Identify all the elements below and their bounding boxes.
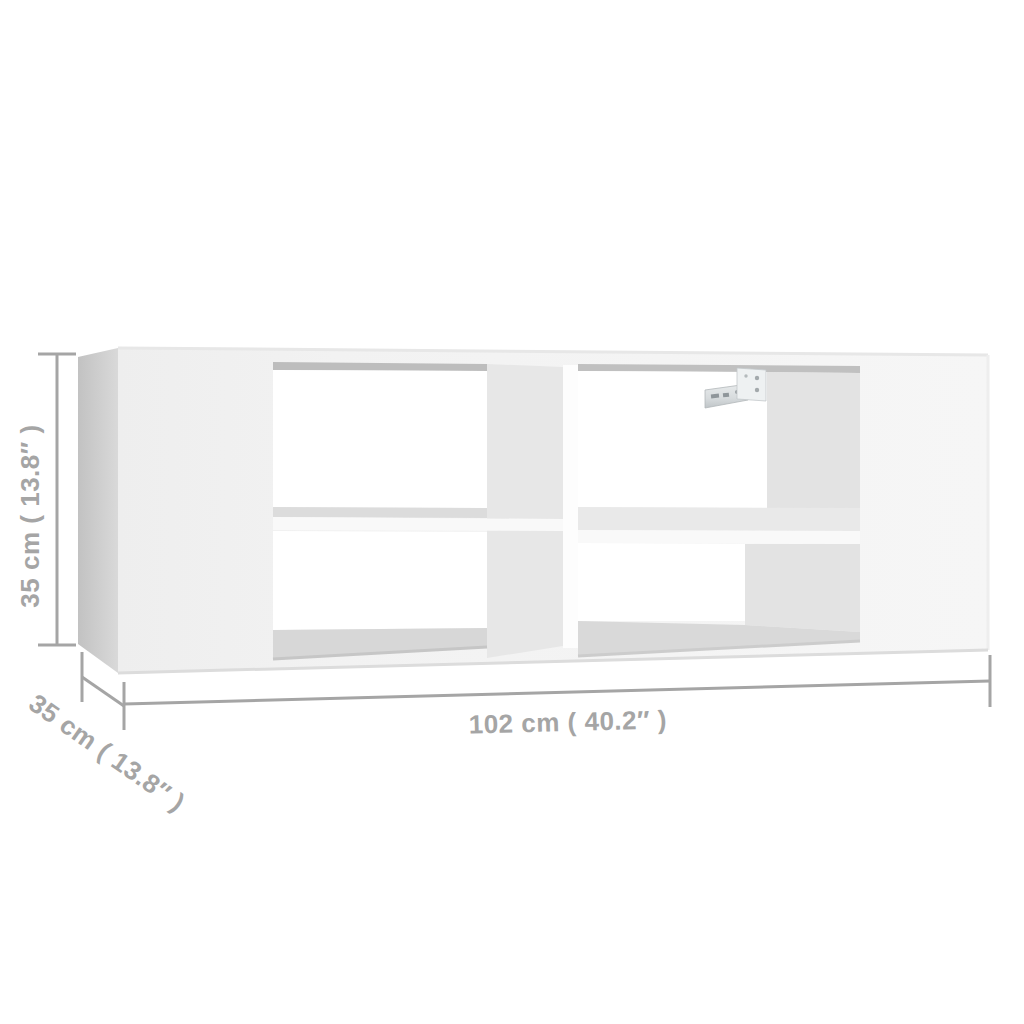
right-shelf-front-edge [578,530,860,544]
bracket-rail-slot [711,394,719,399]
product-dimension-image: 35 cm ( 13.8″ ) 35 cm ( 13.8″ ) 102 cm (… [0,0,1024,1024]
right-shelf-top-surface [578,507,860,531]
compartment-bottom-left-opening [273,531,487,630]
tv-shelf-illustration [78,348,988,673]
center-divider-front-edge [563,365,578,648]
cabinet-left-side-panel [78,348,118,673]
compartment-bottom-left [273,531,487,659]
left-shelf-top-shadow [273,507,487,518]
bracket-plate-hole [755,376,759,380]
compartment-bottom-right-sidewall-shadow [745,544,860,632]
compartment-top-right [578,364,860,508]
diagram-canvas: 35 cm ( 13.8″ ) 35 cm ( 13.8″ ) 102 cm (… [0,0,1024,1024]
compartment-top-left [273,362,487,518]
bracket-plate-hole [744,374,747,377]
compartment-top-left-opening [273,370,487,508]
compartment-bottom-right [578,543,860,656]
compartment-top-right-sidewall-shadow [767,372,860,508]
compartment-bottom-right-opening [578,543,745,621]
bracket-plate-hole [755,388,759,392]
center-divider-interior-face [487,364,563,658]
left-shelf-front-edge [273,517,563,531]
bracket-rail-slot [723,393,729,398]
height-dimension-label: 35 cm ( 13.8″ ) [15,424,45,607]
bracket-plate [737,368,766,401]
width-dimension-label: 102 cm ( 40.2″ ) [468,704,667,739]
